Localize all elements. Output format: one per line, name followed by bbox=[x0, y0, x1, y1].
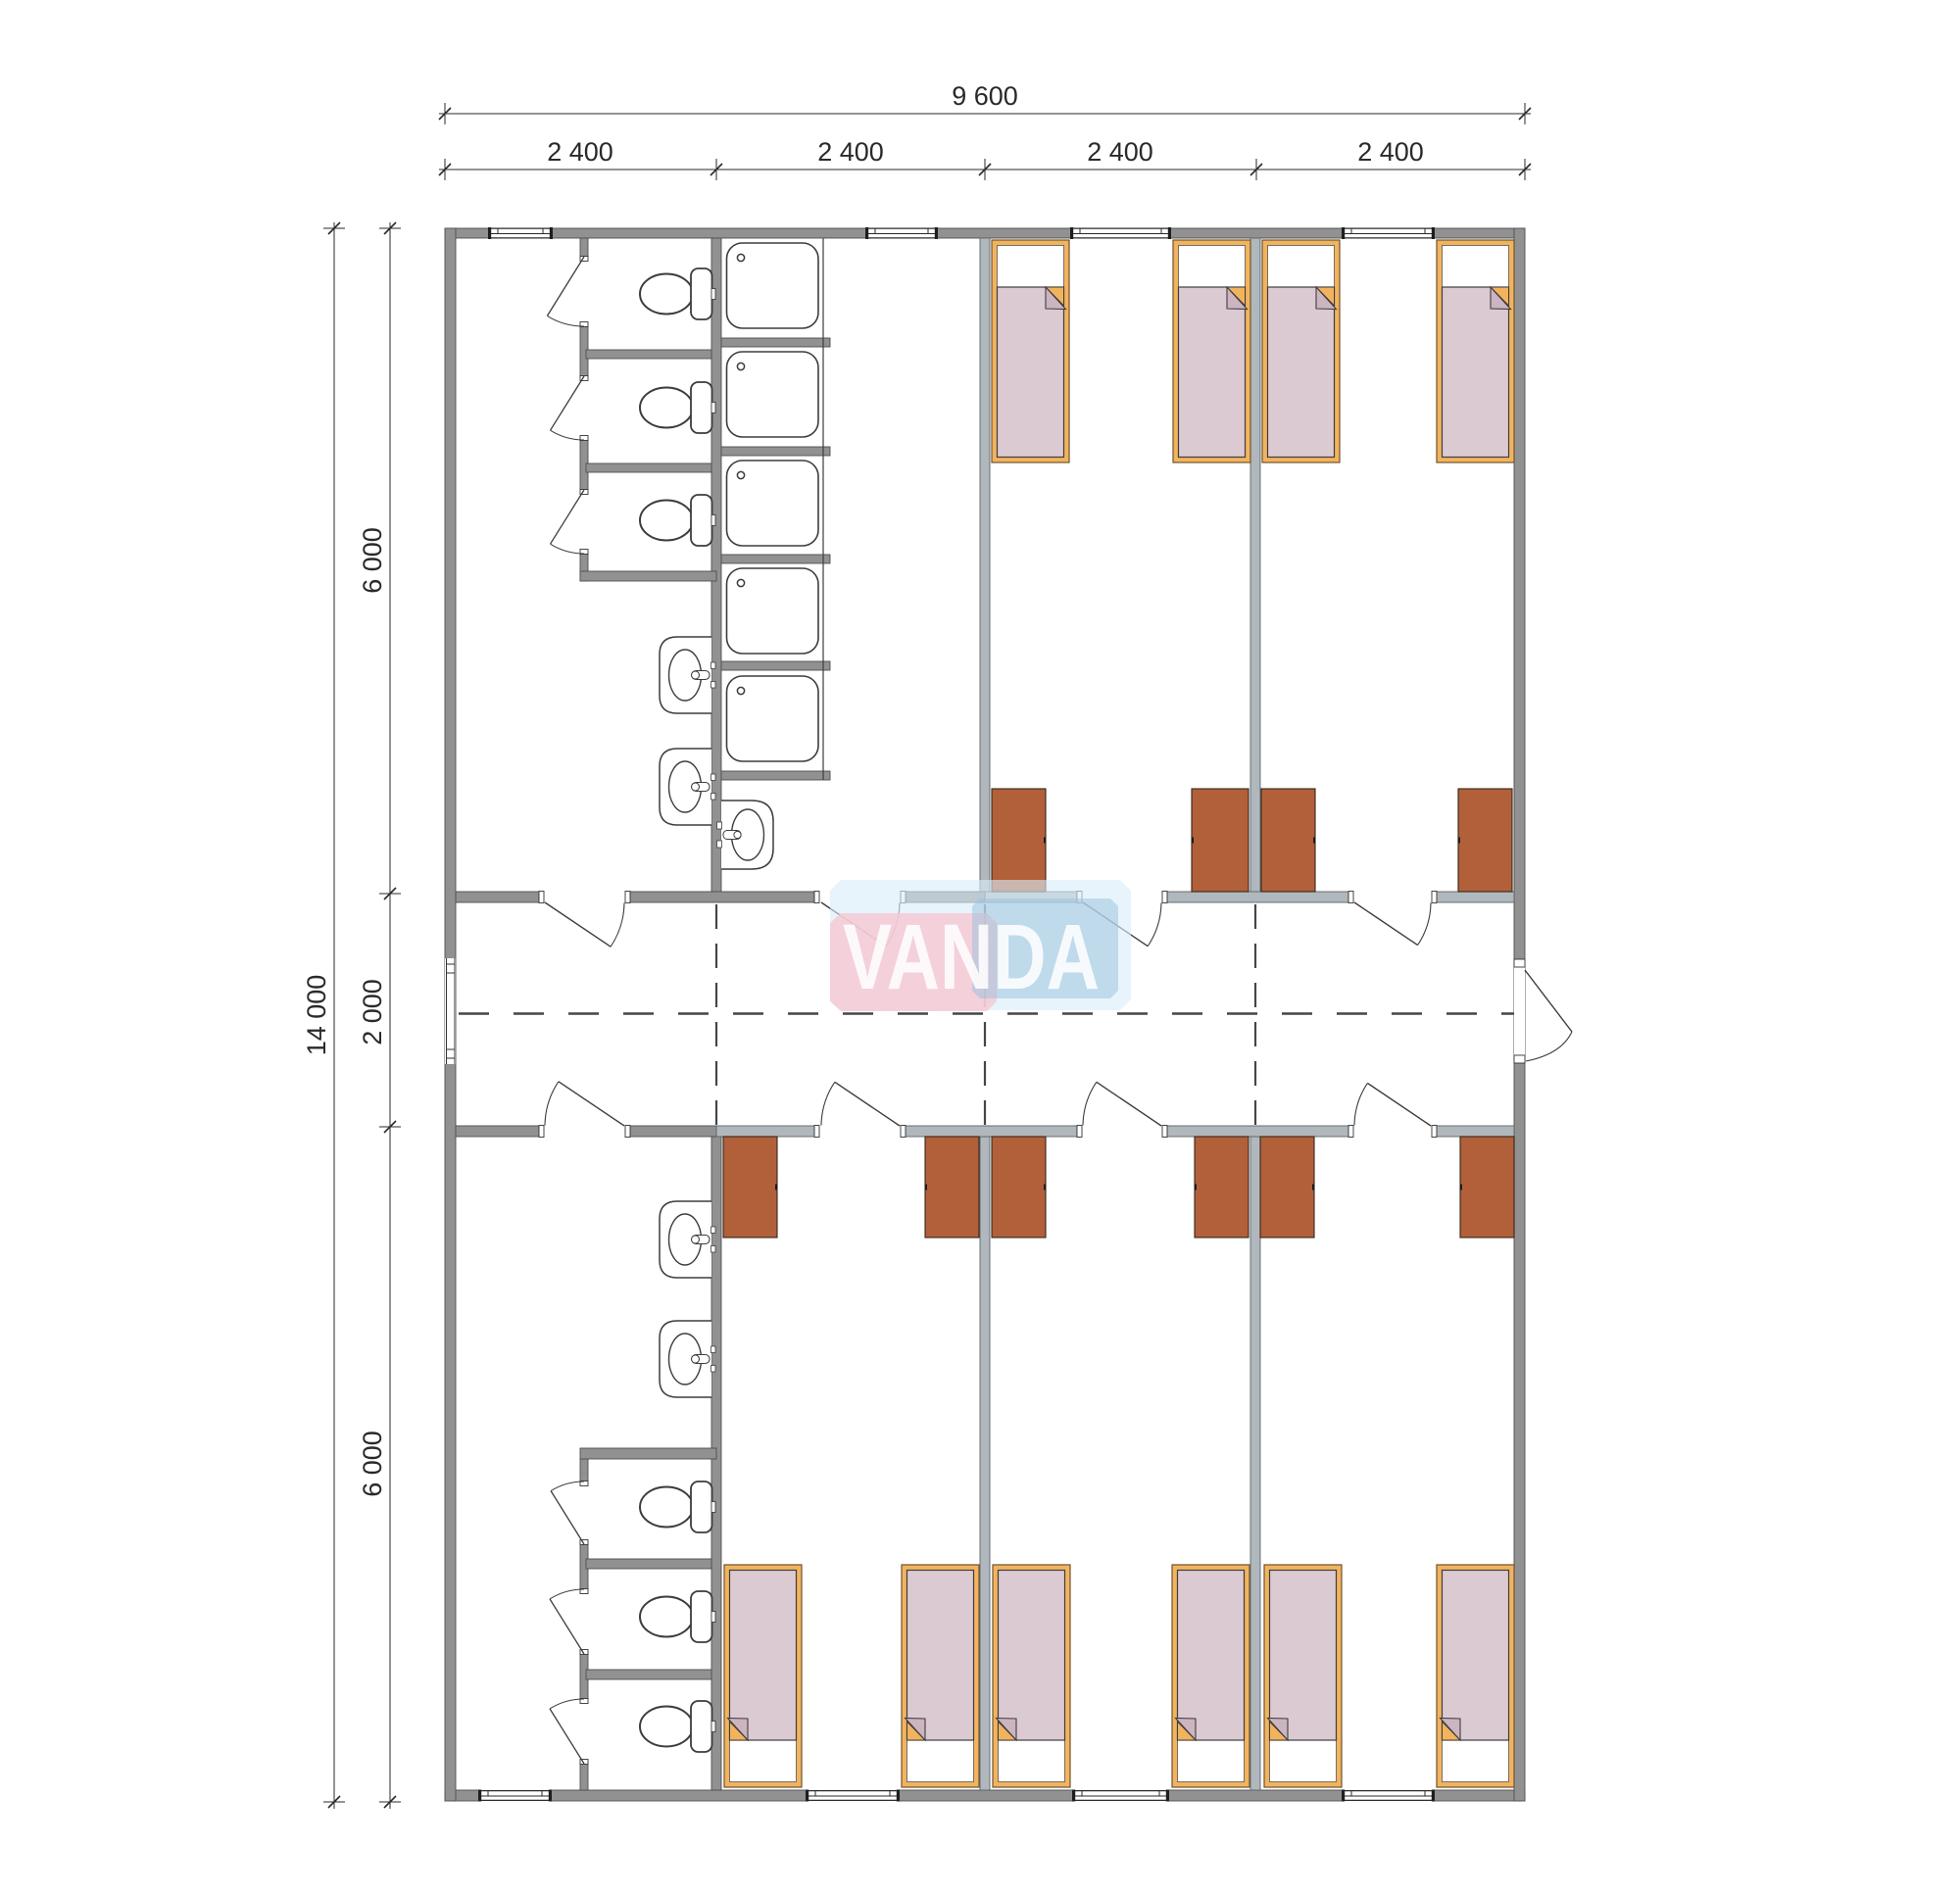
svg-text:2 000: 2 000 bbox=[358, 979, 387, 1045]
svg-text:14 000: 14 000 bbox=[302, 975, 331, 1056]
svg-text:6 000: 6 000 bbox=[358, 1431, 387, 1497]
svg-text:2 400: 2 400 bbox=[1357, 137, 1424, 167]
svg-text:2 400: 2 400 bbox=[547, 137, 613, 167]
svg-text:6 000: 6 000 bbox=[358, 527, 387, 594]
svg-text:2 400: 2 400 bbox=[817, 137, 884, 167]
svg-text:VANDA: VANDA bbox=[843, 905, 1100, 1009]
svg-text:2 400: 2 400 bbox=[1087, 137, 1153, 167]
svg-text:9 600: 9 600 bbox=[952, 81, 1018, 111]
